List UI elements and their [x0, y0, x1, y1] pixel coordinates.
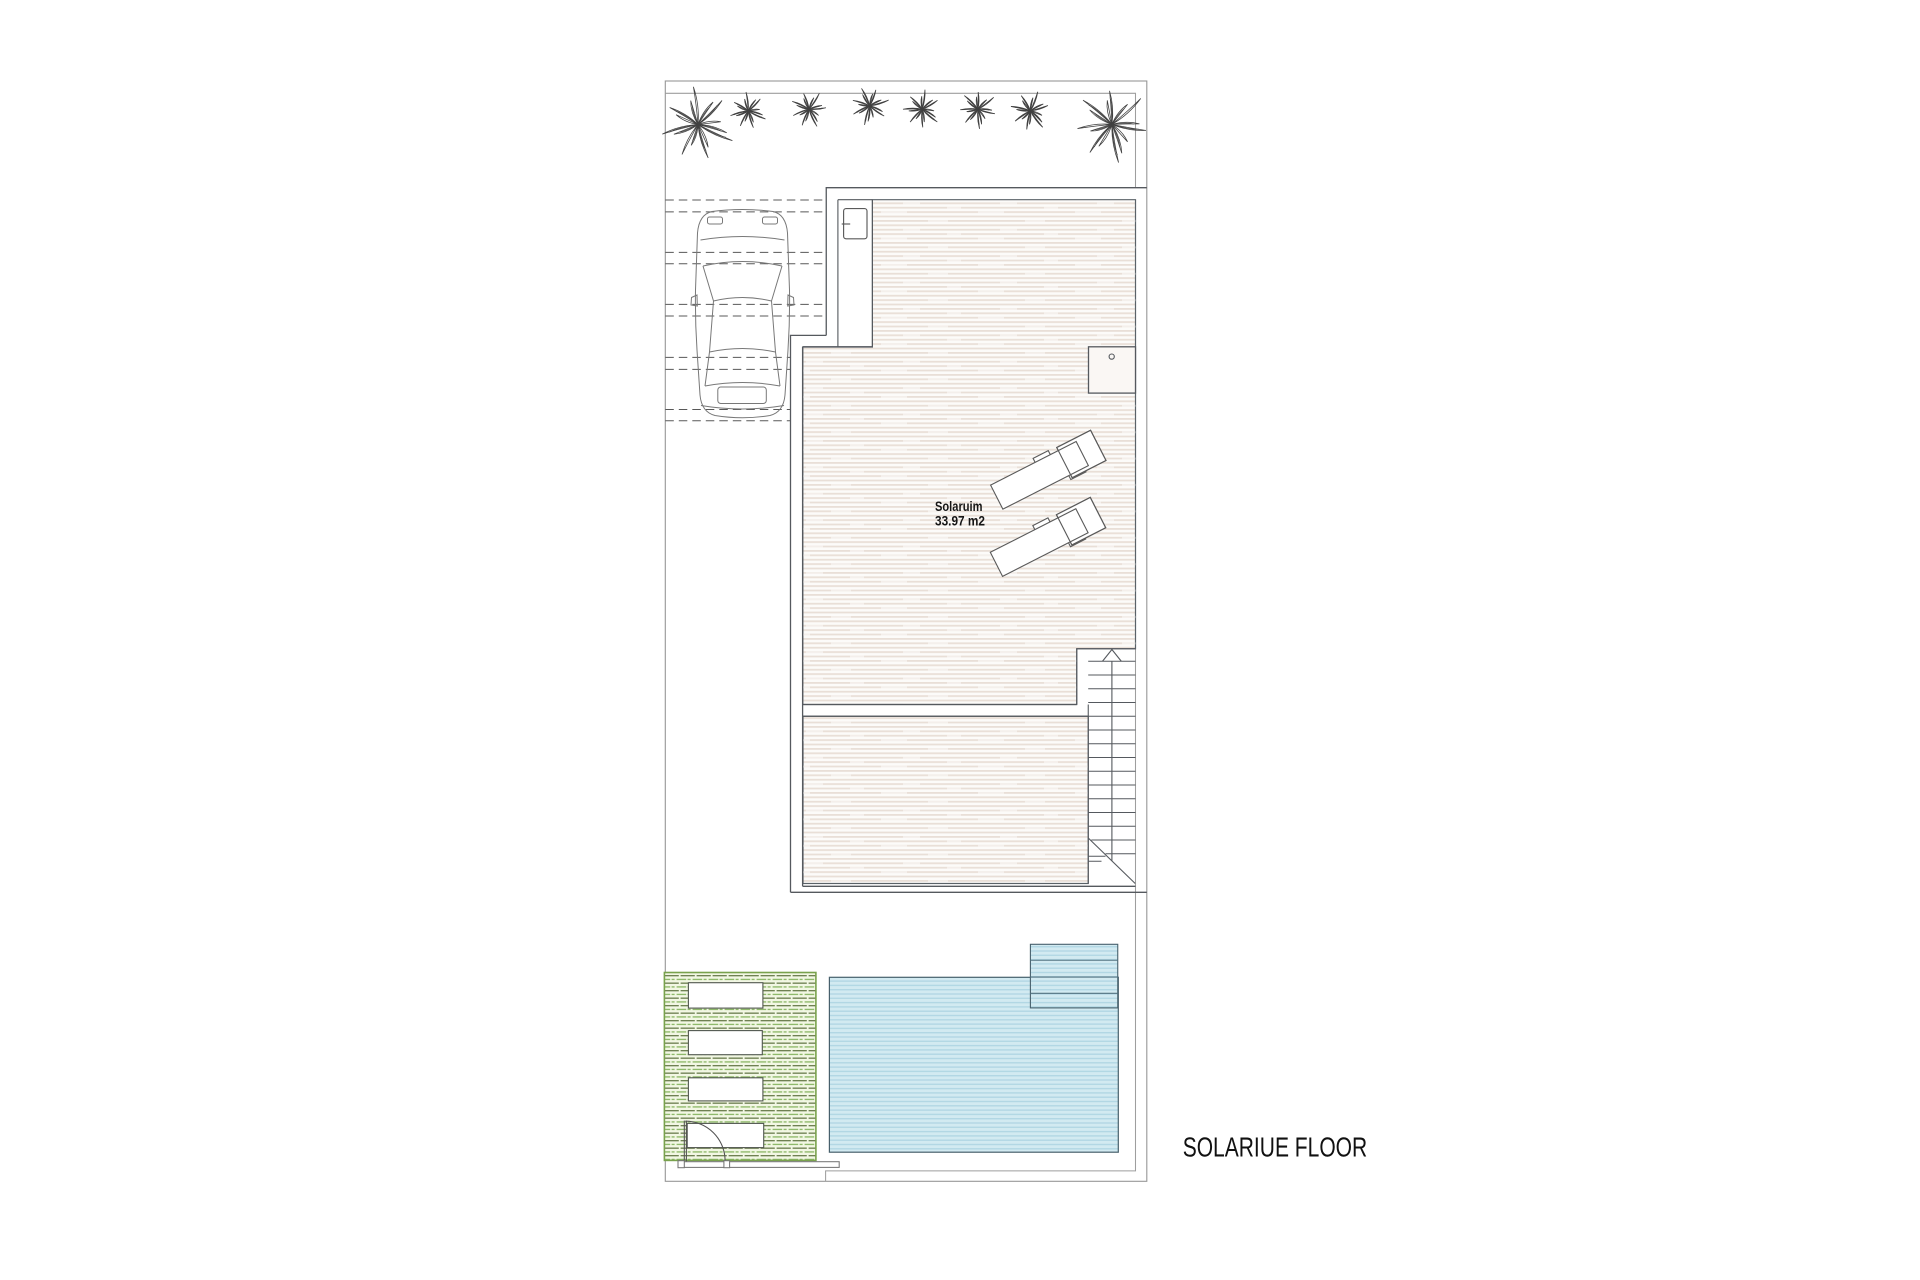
svg-text:SOLARIUE FLOOR: SOLARIUE FLOOR [1183, 1132, 1368, 1163]
svg-text:33.97 m2: 33.97 m2 [935, 514, 985, 529]
svg-text:Solaruim: Solaruim [935, 499, 983, 514]
